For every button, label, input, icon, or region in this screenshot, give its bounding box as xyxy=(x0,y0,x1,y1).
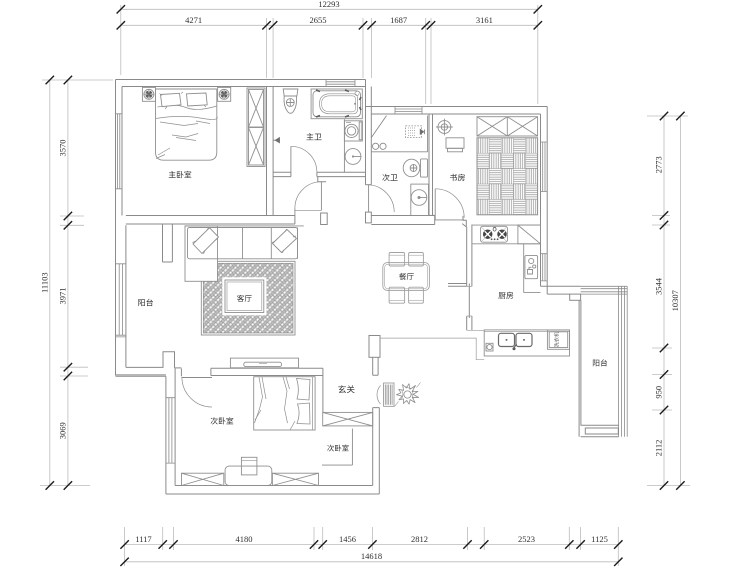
svg-text:12293: 12293 xyxy=(318,0,339,9)
svg-text:3161: 3161 xyxy=(476,15,493,25)
svg-text:4271: 4271 xyxy=(185,15,202,25)
svg-text:10307: 10307 xyxy=(670,290,680,311)
svg-text:2655: 2655 xyxy=(310,15,327,25)
svg-text:3544: 3544 xyxy=(654,277,664,295)
svg-text:3971: 3971 xyxy=(57,288,67,305)
svg-text:4180: 4180 xyxy=(236,534,253,544)
svg-text:2112: 2112 xyxy=(654,440,664,457)
svg-text:3069: 3069 xyxy=(57,422,67,439)
svg-text:1125: 1125 xyxy=(591,534,608,544)
svg-text:950: 950 xyxy=(654,386,664,399)
svg-text:2773: 2773 xyxy=(654,156,664,173)
svg-text:2812: 2812 xyxy=(411,534,428,544)
svg-text:14618: 14618 xyxy=(361,551,382,561)
svg-text:1687: 1687 xyxy=(390,15,407,25)
svg-text:3570: 3570 xyxy=(57,140,67,157)
svg-text:11103: 11103 xyxy=(39,272,49,293)
svg-text:1117: 1117 xyxy=(135,534,151,544)
svg-text:1456: 1456 xyxy=(339,534,356,544)
svg-text:2523: 2523 xyxy=(518,534,535,544)
